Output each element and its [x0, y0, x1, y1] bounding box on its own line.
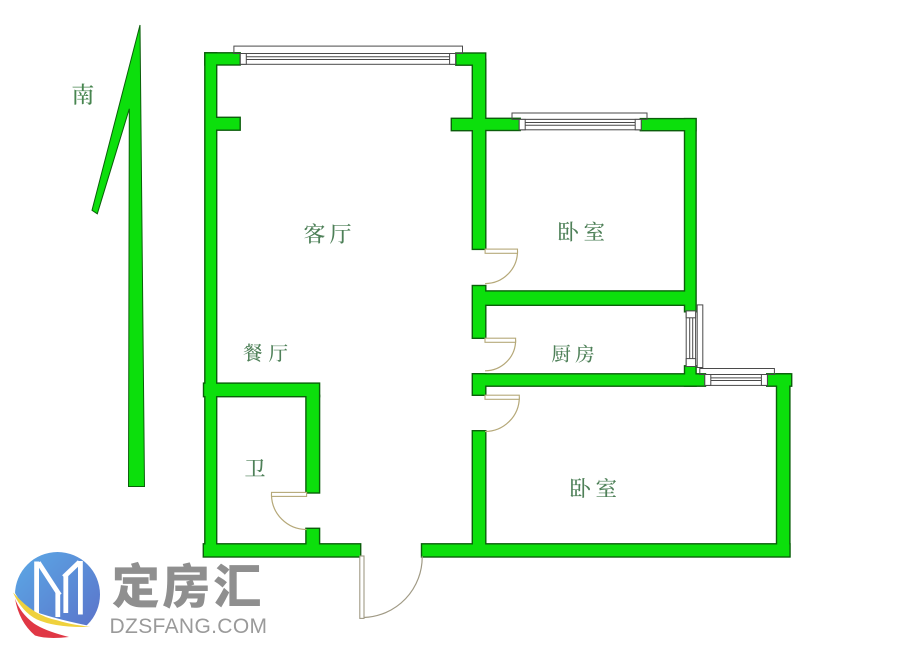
- svg-text:DZSFANG.COM: DZSFANG.COM: [110, 615, 268, 638]
